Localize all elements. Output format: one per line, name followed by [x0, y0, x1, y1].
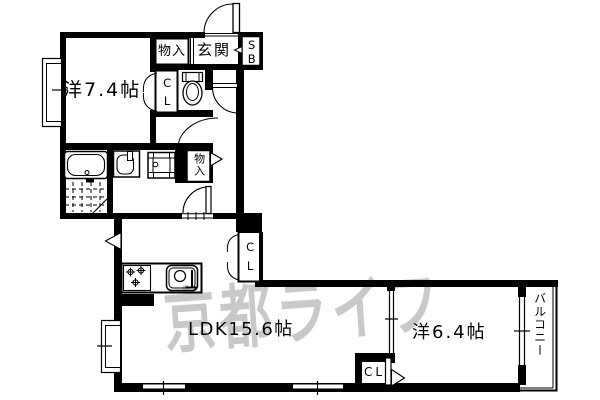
- washer-pan: [148, 153, 175, 179]
- toilet-bowl: [183, 81, 202, 105]
- balcony-label: バルコニー: [533, 292, 546, 357]
- storage-hall-arrow: [211, 153, 223, 167]
- shoebox-label: SB: [245, 38, 258, 66]
- bath-tile-floor: [65, 182, 109, 212]
- bedroom1-label: 洋7.4帖: [63, 80, 141, 101]
- entrance-door-leaf: [233, 4, 240, 33]
- closet-ldk-door-arc: [227, 262, 239, 280]
- wall-closet3-left: [355, 353, 362, 385]
- washbasin-faucet: [128, 152, 133, 161]
- closet-bedroom-label: CL: [364, 366, 385, 379]
- window-bedroom1-inner: [47, 64, 62, 122]
- wall-upper-bottom-left: [60, 213, 182, 219]
- bath-door-tick: [86, 179, 94, 183]
- bedroom2-label: 洋6.4帖: [412, 323, 487, 343]
- wall-balcony-top-seg: [518, 287, 526, 297]
- storage-top-label: 物入: [158, 45, 186, 59]
- washer-drain: [153, 162, 158, 167]
- ldk-wall-arrow: [106, 233, 122, 250]
- wall-balcony-bottom-seg: [518, 365, 526, 385]
- bedroom2-door-leaf: [386, 358, 392, 385]
- toilet-door-leaf: [213, 84, 238, 88]
- entrance-door-arc: [204, 4, 233, 33]
- wall-upper-bottom-right: [213, 213, 236, 219]
- washroom-door-leaf: [206, 187, 211, 214]
- washroom-door-arc: [183, 187, 206, 213]
- floorplan: 洋7.4帖 玄関 物入 SB CL 物入 LDK15.6帖 CL 洋6.4帖 C…: [0, 0, 600, 400]
- wall-top-left: [60, 32, 205, 38]
- storage-hall-label: 物入: [193, 153, 205, 177]
- closet-ldk-cap: [236, 213, 262, 232]
- closet-ldk-door-arc: [227, 235, 239, 253]
- closet-ldk-label: CL: [244, 240, 257, 278]
- closet-hall-label: CL: [161, 76, 174, 112]
- ldk-label: LDK15.6帖: [188, 320, 294, 340]
- wall-top-right-section: [255, 280, 558, 287]
- toilet-door-arc: [213, 88, 239, 114]
- wall-bath-top: [60, 143, 182, 150]
- wall-toilet-right: [205, 70, 213, 90]
- entrance-label: 玄関: [197, 42, 231, 59]
- floorplan-linework: [0, 0, 600, 400]
- kitchen-base-block: [118, 294, 154, 306]
